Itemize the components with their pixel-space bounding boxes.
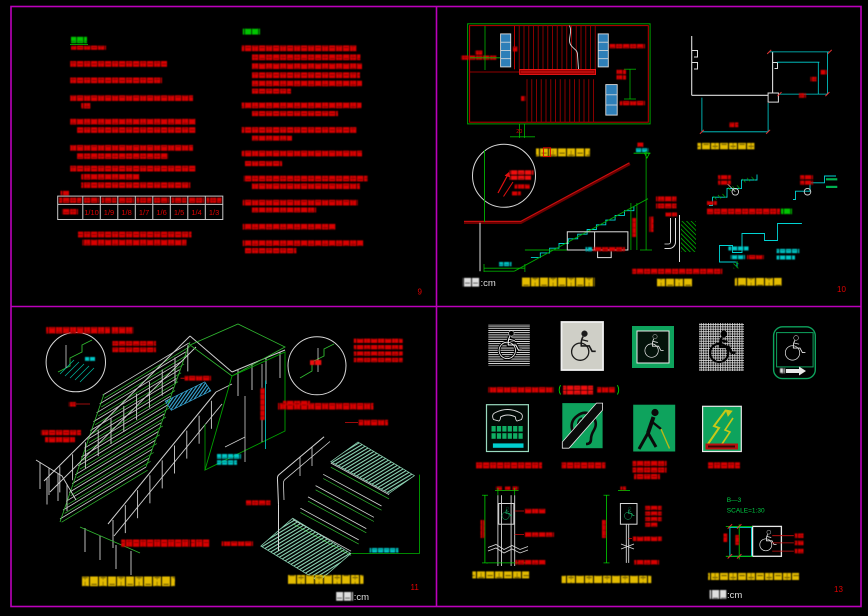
svg-text:11: 11 xyxy=(411,583,420,592)
svg-text::cm: :cm xyxy=(354,592,369,603)
svg-text:1/3: 1/3 xyxy=(209,208,219,217)
svg-text:1/10: 1/10 xyxy=(84,208,99,217)
svg-text:9: 9 xyxy=(418,288,423,297)
svg-text:13: 13 xyxy=(834,585,843,594)
svg-text:1/6: 1/6 xyxy=(156,208,166,217)
svg-text::cm: :cm xyxy=(727,590,742,601)
svg-text:1/9: 1/9 xyxy=(104,208,114,217)
svg-text:10: 10 xyxy=(837,285,846,294)
svg-text:B—3: B—3 xyxy=(727,497,742,504)
svg-text:1/7: 1/7 xyxy=(139,208,149,217)
svg-text:1/4: 1/4 xyxy=(191,208,201,217)
svg-text::cm: :cm xyxy=(481,278,496,289)
svg-text:1/5: 1/5 xyxy=(174,208,184,217)
svg-text:1/8: 1/8 xyxy=(121,208,131,217)
svg-text:20: 20 xyxy=(516,129,522,135)
svg-text:SCALE=1:30: SCALE=1:30 xyxy=(727,507,765,514)
